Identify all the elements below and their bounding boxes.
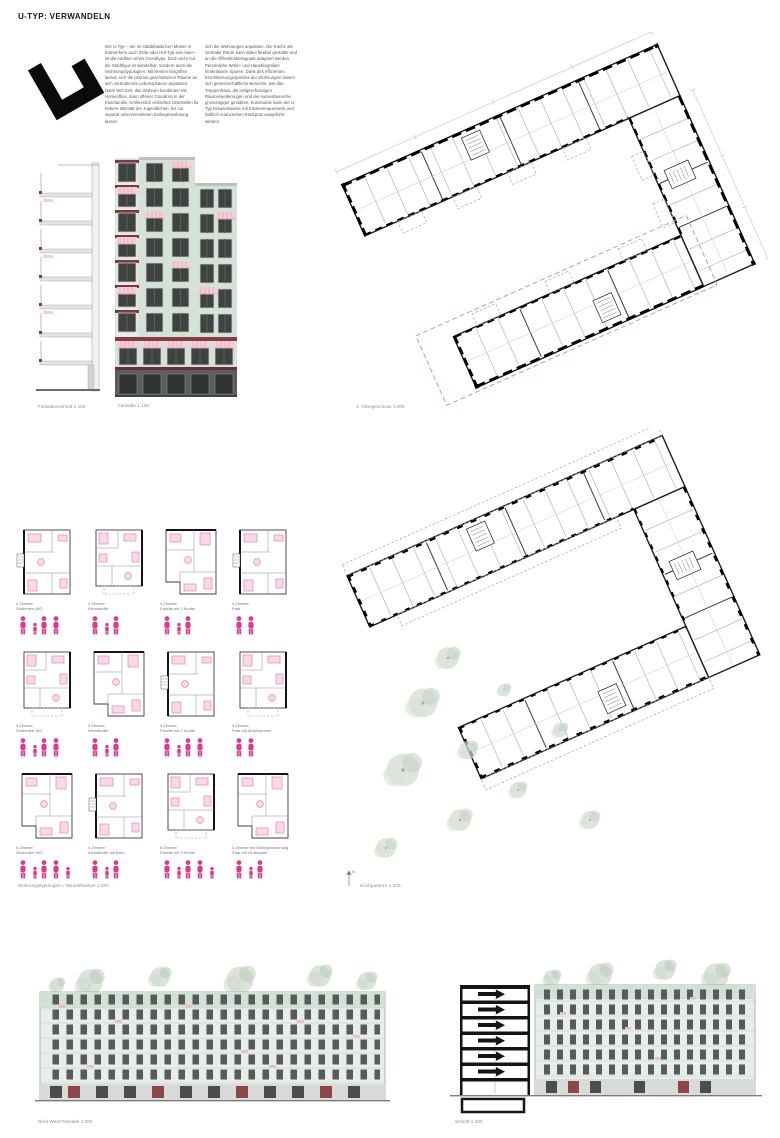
- occupant-figures: [160, 858, 232, 885]
- apartment-plan: [16, 650, 88, 720]
- section-schnitt: [450, 957, 762, 1119]
- apartment-plan: [16, 772, 88, 842]
- typology-cell: 4 ZimmerFamilie mit 2 Kinder: [160, 650, 232, 772]
- typology-label: 4 ZimmerStudenten WG: [16, 723, 88, 734]
- typology-desc: Paar mit Musikzimmer: [232, 728, 304, 733]
- typology-label: 4 ZimmerFamilie mit 2 Kinder: [160, 723, 232, 734]
- typology-label: 3 ZimmerKleinfamilie: [88, 601, 160, 612]
- floor-plan-obergeschoss: [333, 32, 768, 437]
- intro-text-col2: sich die Wohnungen anpassen. Die Küche a…: [205, 44, 299, 125]
- facade-elevation-drawing: [115, 155, 237, 401]
- typology-desc: Kleinfamilie mit Büro: [88, 850, 160, 855]
- apartment-plan: [88, 650, 160, 720]
- occupant-figures: [16, 614, 88, 641]
- occupant-figures: [88, 614, 160, 641]
- typology-desc: Kleinfamilie: [88, 728, 160, 733]
- typology-label: 4 ZimmerPaar mit Musikzimmer: [232, 723, 304, 734]
- typology-label: 4 ZimmerFamilie mit 2 Kinder: [160, 601, 232, 612]
- apartment-plan: [88, 528, 160, 598]
- presentation-board: U-TYP: VERWANDELN Der U-Typ – der im stä…: [0, 0, 780, 1138]
- occupant-figures: [232, 736, 304, 763]
- u-type-logo: [28, 44, 100, 120]
- apartment-plan: [160, 528, 232, 598]
- typology-desc: Familie mit 2 Kinder: [160, 606, 232, 611]
- typology-desc: Paar mit Grossvater: [232, 850, 304, 855]
- typology-cell: 3 ZimmerKleinfamilie: [88, 650, 160, 772]
- typology-grid: 4 ZimmerStudenten WG3 ZimmerKleinfamilie…: [16, 528, 304, 894]
- typology-cell: 5 ZimmerFamilie mit 3 Kinder: [160, 772, 232, 894]
- typology-desc: Studenten WG: [16, 728, 88, 733]
- caption-nordwest: Nord West Fassade 1:200: [38, 1119, 93, 1124]
- caption-fassadenschnitt: Fassadenschnitt 1:100: [38, 404, 85, 409]
- caption-hochparterre: Hochparterre 1:200: [360, 883, 401, 888]
- apartment-plan: [88, 772, 160, 842]
- typology-label: 4 ZimmerKleinfamilie mit Büro: [88, 845, 160, 856]
- apartment-plan: [232, 772, 304, 842]
- typology-label: 6 ZimmerStudenten WG: [16, 845, 88, 856]
- typology-cell: 3 Zimmer mit EinliegerwohnungPaar mit Gr…: [232, 772, 304, 894]
- occupant-figures: [232, 614, 304, 641]
- caption-fassade: Fassade 1:100: [118, 403, 149, 408]
- floor-plan-hochparterre: [328, 428, 773, 878]
- typology-cell: 4 ZimmerStudenten WG: [16, 650, 88, 772]
- typology-desc: Familie mit 2 Kinder: [160, 728, 232, 733]
- typology-desc: Familie mit 3 Kinder: [160, 850, 232, 855]
- occupant-figures: [16, 858, 88, 885]
- north-arrow-label: N: [352, 869, 355, 874]
- occupant-figures: [16, 736, 88, 763]
- caption-schnitt: Schnitt 1:200: [455, 1119, 483, 1124]
- occupant-figures: [88, 736, 160, 763]
- facade-section-drawing: [30, 155, 106, 401]
- apartment-plan: [232, 528, 304, 598]
- apartment-plan: [160, 772, 232, 842]
- elevation-nordwest: [35, 962, 390, 1114]
- page-title: U-TYP: VERWANDELN: [18, 12, 110, 21]
- caption-obergeschoss: 1. Obergeschoss 1:200: [356, 404, 405, 409]
- apartment-plan: [16, 528, 88, 598]
- typology-desc: Kleinfamilie: [88, 606, 160, 611]
- occupant-figures: [88, 858, 160, 885]
- typology-cell: 4 ZimmerFamilie mit 2 Kinder: [160, 528, 232, 650]
- intro-text-col1: Der U-Typ – der im städtebaulichen Muste…: [105, 44, 199, 125]
- typology-cell: 4 ZimmerStudenten WG: [16, 528, 88, 650]
- caption-typologien: Wohnungstypologien / Wandelbarkeit 1:200: [18, 883, 109, 888]
- occupant-figures: [160, 736, 232, 763]
- typology-cell: 4 ZimmerKleinfamilie mit Büro: [88, 772, 160, 894]
- typology-cell: 3 ZimmerKleinfamilie: [88, 528, 160, 650]
- typology-label: 3 ZimmerKleinfamilie: [88, 723, 160, 734]
- apartment-plan: [160, 650, 232, 720]
- typology-cell: 4 ZimmerPaar mit Musikzimmer: [232, 650, 304, 772]
- occupant-figures: [160, 614, 232, 641]
- typology-label: 3 Zimmer mit EinliegerwohnungPaar mit Gr…: [232, 845, 304, 856]
- typology-cell: 4 ZimmerPaar: [232, 528, 304, 650]
- typology-label: 4 ZimmerStudenten WG: [16, 601, 88, 612]
- typology-cell: 6 ZimmerStudenten WG: [16, 772, 88, 894]
- typology-desc: Paar: [232, 606, 304, 611]
- apartment-plan: [232, 650, 304, 720]
- occupant-figures: [232, 858, 304, 885]
- typology-label: 5 ZimmerFamilie mit 3 Kinder: [160, 845, 232, 856]
- typology-label: 4 ZimmerPaar: [232, 601, 304, 612]
- typology-desc: Studenten WG: [16, 606, 88, 611]
- typology-desc: Studenten WG: [16, 850, 88, 855]
